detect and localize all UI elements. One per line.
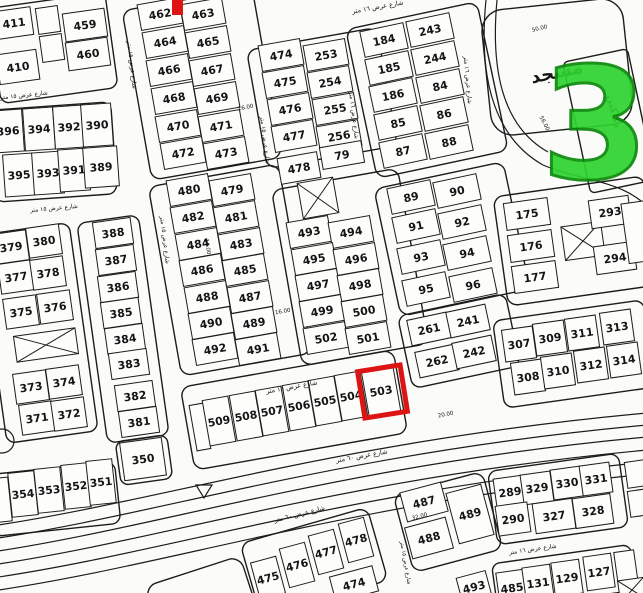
plot-boundary bbox=[35, 6, 60, 35]
plot-411: 411 bbox=[0, 7, 34, 40]
street-label: شارع عرض ٦٠ متر bbox=[334, 448, 388, 465]
plot-92: 92 bbox=[438, 205, 486, 240]
street-label: شارع عرض ١٦ متر bbox=[462, 55, 473, 104]
plot-396: 396 bbox=[0, 109, 24, 153]
plot-394: 394 bbox=[23, 107, 56, 151]
plot-313: 313 bbox=[599, 309, 634, 345]
sector-number-overlay: 3 bbox=[541, 34, 643, 215]
plot-number: 351 bbox=[89, 475, 113, 490]
street-label: شارع عرض ١٥ متر bbox=[29, 203, 78, 214]
plot-467: 467 bbox=[189, 54, 235, 87]
plot-351: 351 bbox=[86, 459, 116, 505]
dimension-label: 16.00 bbox=[237, 103, 254, 112]
plot-314: 314 bbox=[606, 342, 641, 378]
plot bbox=[297, 177, 339, 219]
plot-465: 465 bbox=[185, 26, 231, 59]
roundabout-circle bbox=[0, 429, 14, 453]
plot-95: 95 bbox=[402, 272, 450, 307]
street-label: شارع عرض ١٦ متر bbox=[350, 0, 404, 16]
plot-308: 308 bbox=[510, 359, 545, 395]
plot-127: 127 bbox=[583, 553, 615, 591]
map-canvas: 4114104594603963943923903953933913893793… bbox=[0, 0, 643, 593]
plot-389: 389 bbox=[83, 146, 120, 188]
plot-477: 477 bbox=[308, 529, 343, 574]
plot-476: 476 bbox=[279, 542, 314, 587]
plot bbox=[627, 489, 643, 518]
plot-475: 475 bbox=[251, 556, 286, 593]
dimension-label: 16.00 bbox=[275, 308, 292, 317]
plot-number: 353 bbox=[37, 483, 61, 498]
plot-312: 312 bbox=[573, 347, 608, 383]
plot-466: 466 bbox=[146, 54, 192, 87]
plot bbox=[13, 328, 78, 362]
plot-372: 372 bbox=[51, 397, 88, 431]
street-label: شارع عرض ١٥ متر bbox=[125, 40, 138, 89]
plot-290: 290 bbox=[495, 502, 531, 536]
plot-478: 478 bbox=[338, 517, 373, 562]
plot bbox=[624, 460, 643, 489]
plot-328: 328 bbox=[572, 494, 614, 529]
plot-385: 385 bbox=[100, 297, 141, 328]
plot-371: 371 bbox=[19, 401, 56, 435]
plot-boundary bbox=[624, 460, 643, 489]
plot-387: 387 bbox=[95, 244, 136, 275]
plot-350: 350 bbox=[120, 437, 167, 480]
plot bbox=[35, 6, 60, 35]
plot-460: 460 bbox=[65, 37, 110, 71]
dimension-label: 20.00 bbox=[437, 410, 454, 419]
plot-383: 383 bbox=[108, 348, 149, 379]
plot-463: 463 bbox=[180, 0, 226, 30]
plot-number: 354 bbox=[11, 487, 35, 502]
plot-459: 459 bbox=[62, 8, 107, 42]
plot-376: 376 bbox=[37, 290, 74, 324]
plot-478: 478 bbox=[277, 152, 321, 185]
plot-331: 331 bbox=[579, 462, 613, 496]
plot-boundary bbox=[627, 489, 643, 518]
plot-488: 488 bbox=[405, 517, 454, 559]
plot-number: 389 bbox=[89, 160, 113, 175]
plot-354: 354 bbox=[8, 471, 38, 517]
plot-number: 485 bbox=[500, 580, 525, 593]
plot-382: 382 bbox=[114, 380, 155, 411]
plot-176: 176 bbox=[507, 230, 554, 263]
plot-373: 373 bbox=[13, 370, 50, 404]
street-label: شارع عرض ١٥ متر bbox=[0, 90, 48, 102]
plot bbox=[39, 34, 64, 63]
plot-93: 93 bbox=[397, 240, 445, 275]
plot-310: 310 bbox=[540, 353, 575, 389]
street-label: شارع عرض ١٥ متر bbox=[158, 215, 171, 264]
plot-number: 352 bbox=[64, 479, 88, 494]
plot-129: 129 bbox=[551, 559, 583, 593]
plot-number: 393 bbox=[36, 166, 60, 181]
plot-381: 381 bbox=[118, 406, 159, 437]
plot-327: 327 bbox=[532, 498, 576, 533]
plot-boundary bbox=[39, 34, 64, 63]
street-label: شارع عرض ١٥ متر bbox=[258, 115, 271, 164]
plot-242: 242 bbox=[452, 335, 497, 369]
plot-464: 464 bbox=[142, 26, 188, 59]
plot-377: 377 bbox=[0, 260, 34, 294]
plot-468: 468 bbox=[151, 82, 197, 115]
plot-number: 396 bbox=[0, 124, 20, 139]
plot-388: 388 bbox=[92, 217, 133, 248]
plot-131: 131 bbox=[522, 564, 554, 593]
plot-410: 410 bbox=[0, 49, 40, 84]
plot-307: 307 bbox=[501, 326, 536, 362]
plot-375: 375 bbox=[3, 295, 40, 329]
plot-number: 390 bbox=[85, 118, 109, 133]
plot-309: 309 bbox=[532, 320, 567, 356]
plot-311: 311 bbox=[564, 315, 599, 351]
plot-489: 489 bbox=[446, 484, 494, 544]
plot-number: 395 bbox=[7, 168, 31, 183]
plot-493: 493 bbox=[456, 571, 492, 593]
plot-469: 469 bbox=[194, 82, 240, 115]
plot-378: 378 bbox=[30, 256, 67, 290]
plot-353: 353 bbox=[34, 467, 64, 513]
plot-241: 241 bbox=[446, 304, 491, 338]
plot-177: 177 bbox=[511, 261, 558, 294]
plot-379: 379 bbox=[0, 230, 29, 264]
plot-330: 330 bbox=[550, 466, 584, 500]
plot-number: 391 bbox=[62, 163, 86, 178]
street-label: شارع عرض ١٦ متر bbox=[508, 543, 557, 557]
red-marker bbox=[172, 0, 183, 15]
plot-90: 90 bbox=[433, 174, 481, 209]
plot-329: 329 bbox=[520, 471, 554, 505]
block-outline bbox=[145, 556, 256, 593]
plot-261: 261 bbox=[407, 312, 452, 346]
dimension-label: 50.00 bbox=[531, 24, 548, 34]
plot-91: 91 bbox=[392, 209, 440, 244]
plot-374: 374 bbox=[46, 365, 83, 399]
plot-number: 394 bbox=[27, 122, 51, 137]
plot-380: 380 bbox=[26, 224, 63, 258]
plot-392: 392 bbox=[53, 105, 86, 149]
plot-390: 390 bbox=[81, 103, 114, 147]
plot-94: 94 bbox=[443, 236, 491, 271]
plot-number: 392 bbox=[57, 120, 81, 135]
cadastral-map: 4114104594603963943923903953933913893793… bbox=[0, 0, 643, 593]
plot-number: 79 bbox=[333, 148, 350, 163]
plot-395: 395 bbox=[3, 153, 36, 197]
